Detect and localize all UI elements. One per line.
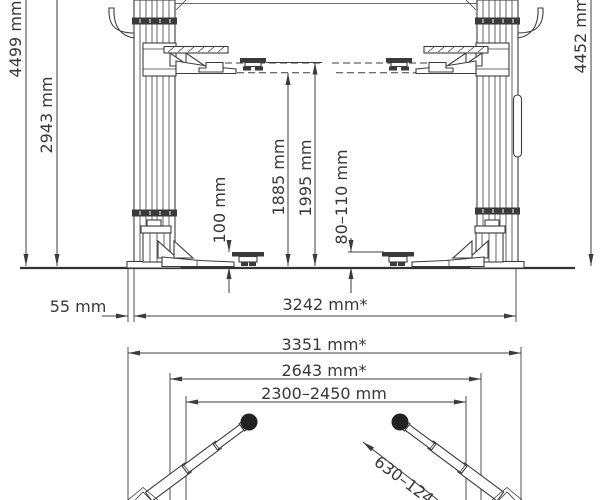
lowered-arm-left — [141, 220, 264, 267]
label-column-height: 2943 mm — [37, 77, 56, 154]
label-overall-height-right: 4452 mm — [571, 0, 590, 73]
two-post-lift-dimension-diagram: 4499 mm 2943 mm 4452 mm 1885 mm 1995 mm … — [0, 0, 600, 500]
label-lifting-height-arm: 1885 mm — [269, 139, 288, 216]
label-overall-width-front: 3242 mm* — [283, 295, 368, 314]
label-lifting-height-pad: 1995 mm — [296, 140, 315, 217]
label-overall-width-top: 3351 mm* — [282, 335, 367, 354]
swing-arm-left — [144, 410, 261, 500]
label-inner-width: 2643 mm* — [282, 361, 367, 380]
crossbar — [175, 0, 477, 10]
cable-hook-right — [518, 8, 543, 38]
raised-arm-right — [332, 43, 509, 76]
label-pad-height-range: 80–110 mm — [332, 149, 351, 244]
label-arm-reach: 630–124 — [371, 452, 438, 500]
label-baseplate-overhang: 55 mm — [50, 297, 107, 316]
diagram-canvas: 4499 mm 2943 mm 4452 mm 1885 mm 1995 mm … — [0, 0, 600, 500]
pad-raised-left — [240, 58, 266, 63]
top-view: 3351 mm* 2643 mm* 2300–2450 mm 630–124 — [128, 335, 522, 500]
label-drive-through-width: 2300–2450 mm — [261, 384, 387, 403]
cable-hook-left — [109, 8, 134, 38]
pad-raised-right — [386, 58, 412, 63]
label-pad-min-height: 100 mm — [210, 177, 229, 244]
lowered-arm-right — [348, 220, 505, 267]
pad-lowered-left — [232, 252, 264, 257]
pad-lowered-right — [382, 252, 414, 257]
front-view: 4499 mm 2943 mm 4452 mm 1885 mm 1995 mm … — [6, 0, 591, 322]
raised-arm-left — [143, 43, 322, 76]
power-unit-detail — [514, 95, 522, 157]
label-overall-height-left: 4499 mm — [6, 1, 25, 78]
